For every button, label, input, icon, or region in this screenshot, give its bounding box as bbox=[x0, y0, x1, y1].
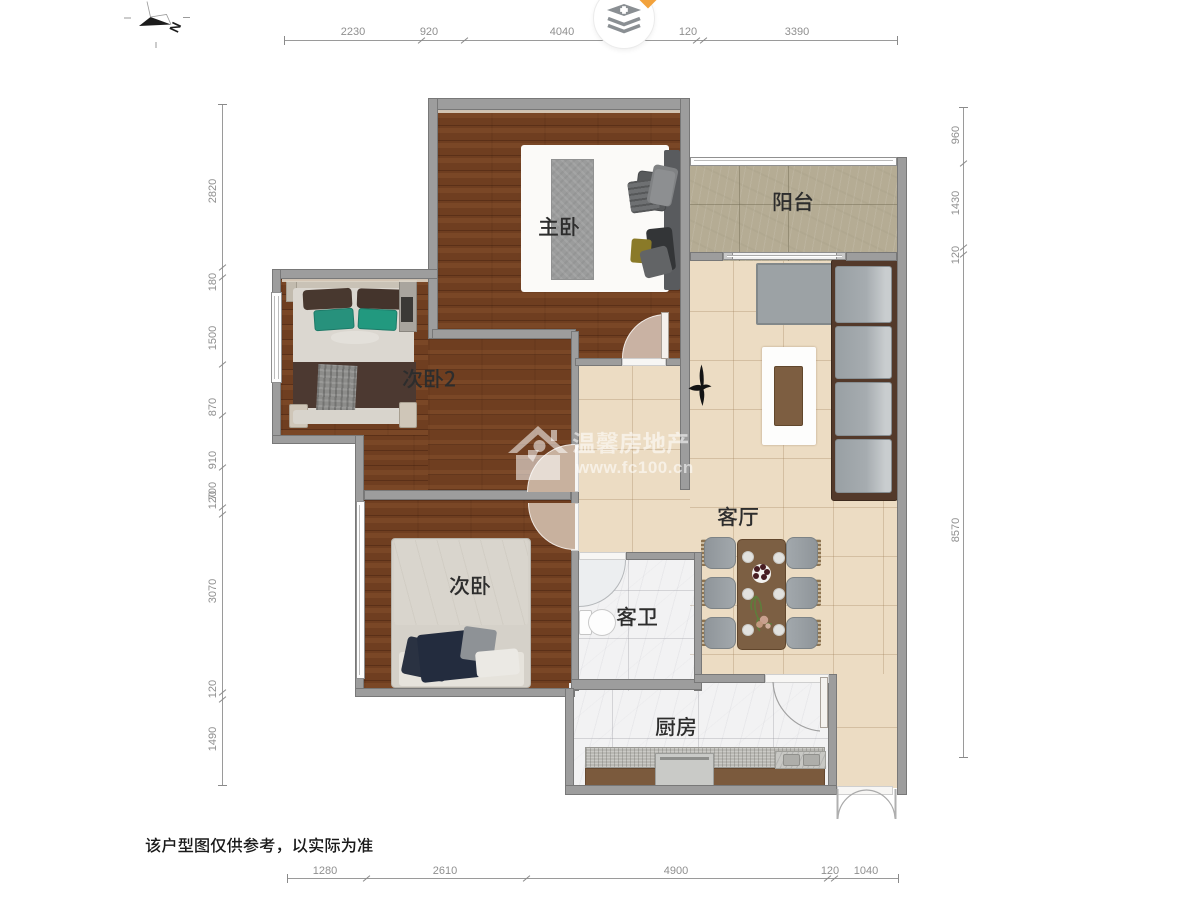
svg-text:N: N bbox=[166, 20, 184, 35]
